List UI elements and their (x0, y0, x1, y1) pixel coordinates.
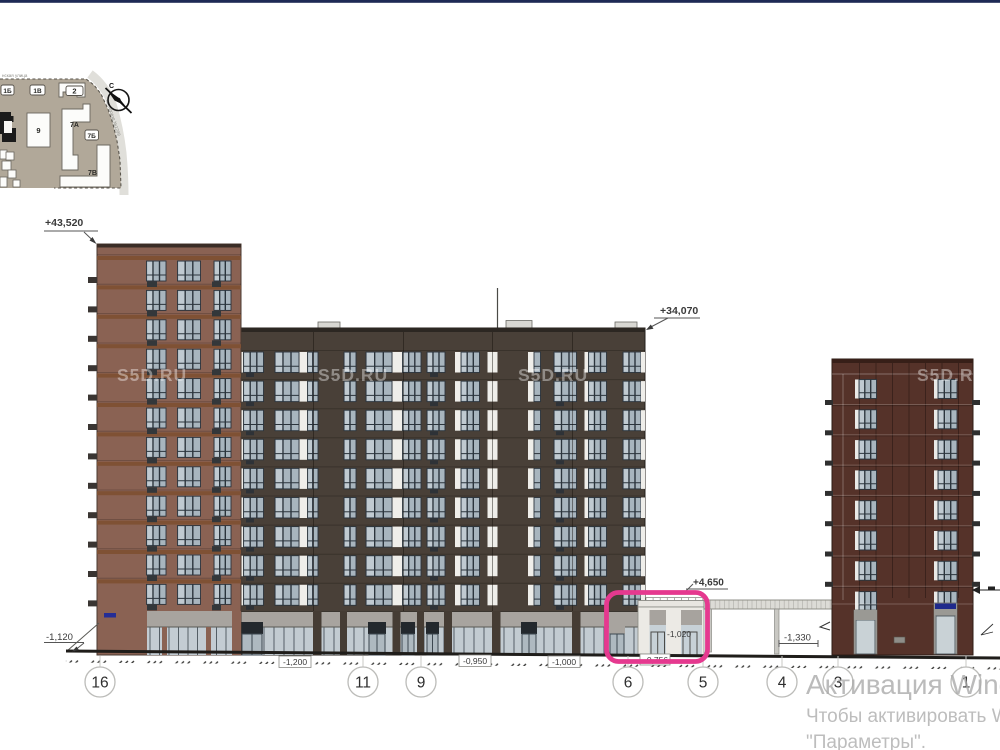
svg-text:Активация Windows: Активация Windows (806, 669, 1000, 700)
svg-text:+34,070: +34,070 (660, 305, 698, 317)
svg-text:"Параметры".: "Параметры". (806, 732, 926, 750)
svg-text:S5D.RU: S5D.RU (117, 365, 187, 385)
svg-text:6: 6 (624, 675, 633, 692)
svg-text:7А: 7А (70, 122, 79, 129)
svg-text:нская улица: нская улица (2, 73, 28, 78)
svg-text:-1,120: -1,120 (46, 632, 73, 643)
svg-text:-1,330: -1,330 (784, 633, 811, 644)
svg-text:Чтобы активировать Windows, пе: Чтобы активировать Windows, перейдите в … (806, 706, 1000, 727)
svg-text:S5D.RU: S5D.RU (917, 365, 987, 385)
svg-text:11: 11 (355, 675, 371, 692)
svg-text:9: 9 (36, 126, 40, 135)
svg-text:-1,000: -1,000 (552, 657, 576, 667)
svg-text:7В: 7В (88, 170, 97, 177)
svg-text:-1,020: -1,020 (667, 629, 691, 639)
svg-text:-0,950: -0,950 (463, 656, 487, 666)
svg-text:16: 16 (91, 675, 108, 692)
svg-text:1Б: 1Б (3, 88, 12, 95)
svg-text:S5D.RU: S5D.RU (718, 365, 788, 385)
svg-text:+43,520: +43,520 (45, 217, 83, 229)
svg-text:S5D.RU: S5D.RU (318, 365, 388, 385)
svg-text:S5D.RU: S5D.RU (518, 365, 588, 385)
svg-text:9: 9 (417, 675, 426, 692)
svg-text:7Б: 7Б (88, 133, 97, 140)
svg-text:2: 2 (72, 87, 76, 96)
svg-text:5: 5 (699, 675, 708, 692)
svg-text:1В: 1В (33, 88, 42, 95)
svg-text:С: С (109, 83, 114, 90)
svg-text:-1,200: -1,200 (283, 657, 307, 667)
svg-text:4: 4 (778, 675, 787, 692)
svg-text:+4,650: +4,650 (693, 578, 724, 589)
